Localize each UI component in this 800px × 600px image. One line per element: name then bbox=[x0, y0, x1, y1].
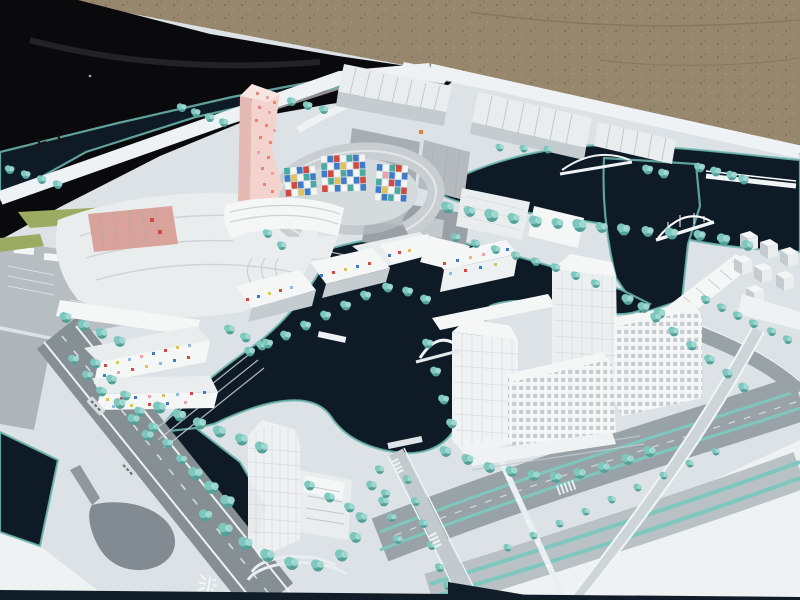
shed-color-mark bbox=[419, 130, 423, 134]
mosaic-panel-right bbox=[375, 164, 408, 202]
tarp-speck bbox=[89, 75, 92, 78]
photo-of-city-scale-model bbox=[0, 0, 800, 600]
